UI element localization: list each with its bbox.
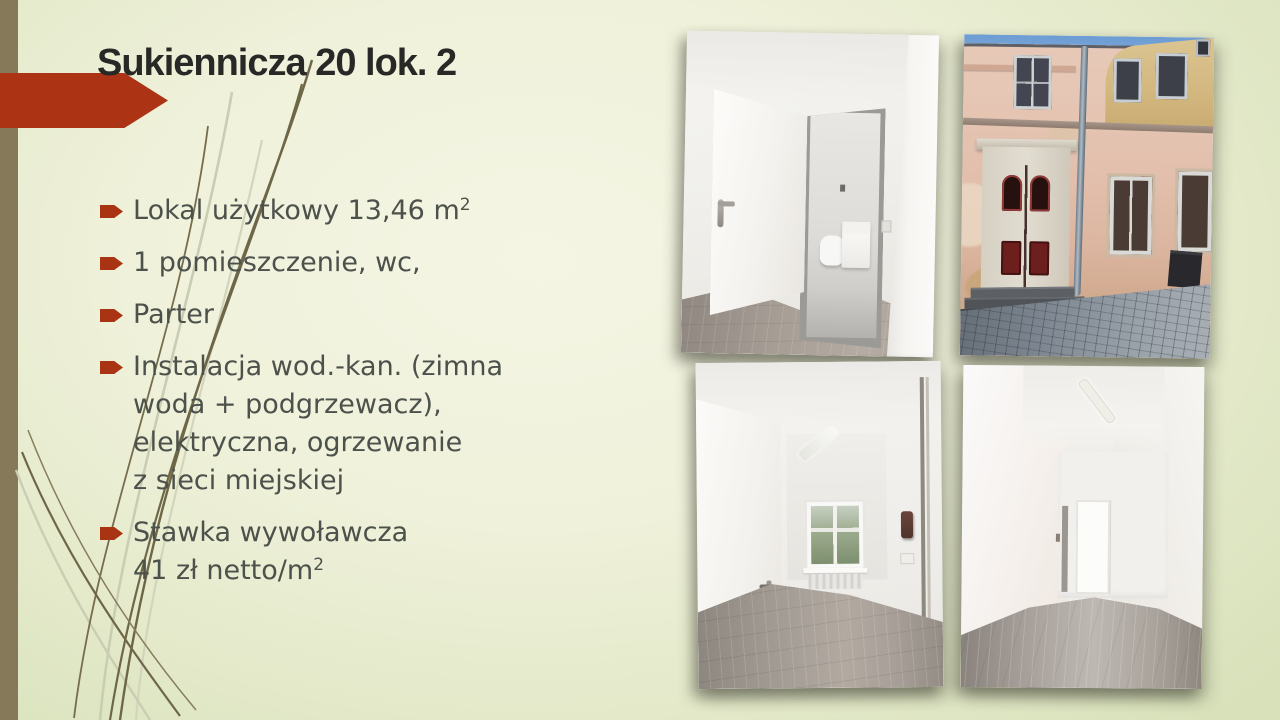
bullet-item: 1 pomieszczenie, wc, xyxy=(100,244,640,282)
sink-cabinet xyxy=(842,222,871,269)
wc-interior xyxy=(806,112,880,338)
photo-interior-open-door-wc xyxy=(681,31,939,358)
bullet-arrow-icon xyxy=(100,257,123,270)
bullet-superscript: 2 xyxy=(460,195,471,215)
bullet-text: Lokal użytkowy 13,46 m xyxy=(133,195,460,226)
intercom-handset xyxy=(901,511,913,538)
wall-switch xyxy=(840,185,845,192)
bullet-item: Lokal użytkowy 13,46 m2 xyxy=(100,192,640,230)
light-switch xyxy=(881,220,891,232)
bullet-item: Instalacja wod.-kan. (zimna woda + podgr… xyxy=(100,348,640,500)
bullet-list: Lokal użytkowy 13,46 m2 1 pomieszczenie,… xyxy=(100,192,640,604)
lower-window xyxy=(1177,171,1212,251)
bullet-superscript: 2 xyxy=(313,555,324,575)
bullet-arrow-icon xyxy=(100,309,123,322)
bullet-item: Stawka wywoławcza 41 zł netto/m2 xyxy=(100,514,640,590)
dark-plaque xyxy=(1168,250,1203,289)
gable-window xyxy=(1113,58,1142,102)
door-arched-pane xyxy=(1002,175,1023,211)
bullet-arrow-icon xyxy=(100,527,123,540)
bullet-arrow-icon xyxy=(100,361,123,374)
bullet-arrow-icon xyxy=(100,205,123,218)
radiator xyxy=(808,574,862,589)
open-door xyxy=(710,89,808,317)
window-panes xyxy=(811,506,860,564)
photo-empty-room xyxy=(961,365,1205,689)
door-arched-pane xyxy=(1030,175,1051,211)
bullet-text: Instalacja wod.-kan. (zimna woda + podgr… xyxy=(133,351,503,496)
gable-window xyxy=(1155,53,1188,99)
door-panel xyxy=(1029,241,1049,275)
ceiling xyxy=(1023,365,1165,452)
bullet-text: Stawka wywoławcza 41 zł netto/m xyxy=(133,517,408,586)
bullet-text: Parter xyxy=(133,299,214,330)
red-double-door xyxy=(993,165,1059,290)
presentation-slide: Sukiennicza 20 lok. 2 Lokal użytkowy 13,… xyxy=(0,0,1280,720)
far-wall xyxy=(1057,452,1168,599)
door-handle-lever xyxy=(718,201,735,206)
bullet-text: 1 pomieszczenie, wc, xyxy=(133,247,421,278)
lower-window xyxy=(1109,176,1152,255)
photo-room-with-window xyxy=(696,361,944,689)
white-door xyxy=(1075,500,1110,594)
photo-tenement-facade xyxy=(960,34,1214,358)
attic-window xyxy=(1196,40,1210,57)
intercom xyxy=(1056,534,1060,542)
wall-outlet xyxy=(900,553,914,564)
upper-window xyxy=(1013,55,1052,110)
window-sill xyxy=(803,568,867,574)
window xyxy=(807,502,864,568)
bullet-item: Parter xyxy=(100,296,640,334)
toilet xyxy=(820,235,845,265)
slide-title: Sukiennicza 20 lok. 2 xyxy=(97,42,456,85)
wc-doorway xyxy=(799,107,886,349)
dark-doorway-slit xyxy=(1061,506,1068,592)
door-panel xyxy=(1001,241,1021,275)
